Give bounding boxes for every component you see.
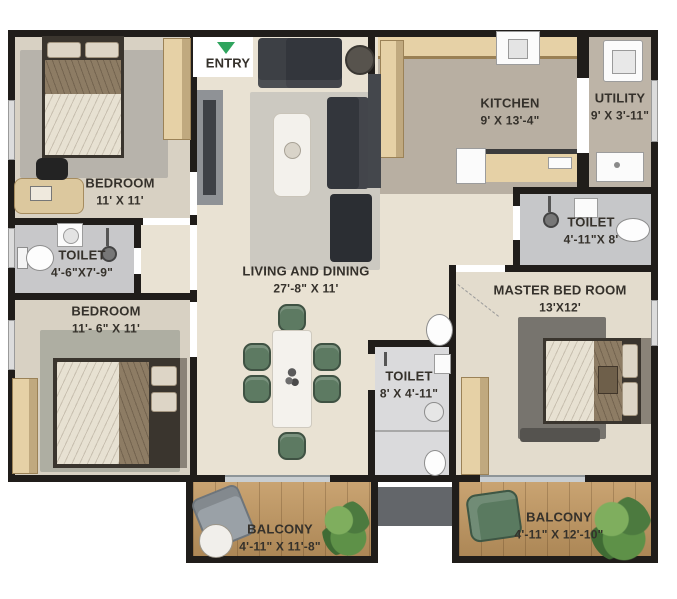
side-table-lamp bbox=[345, 45, 375, 75]
sofa-top bbox=[258, 38, 342, 88]
wall-balcony1-right bbox=[371, 482, 378, 563]
utility-washer-drum bbox=[612, 50, 636, 74]
toilet3-dims: 8' X 4'-11" bbox=[380, 387, 438, 401]
wall-toilet1-bedroom2 bbox=[8, 293, 197, 300]
utility-name: UTILITY bbox=[595, 91, 646, 106]
toilet3-shower-drain bbox=[424, 402, 444, 422]
entry-label: ENTRY bbox=[206, 54, 251, 71]
dining-chair-left-2 bbox=[243, 375, 271, 403]
dining-chair-top bbox=[278, 304, 306, 332]
kitchen-pantry bbox=[380, 40, 404, 158]
utility-faucet bbox=[614, 162, 620, 168]
wall-under-kitchen bbox=[513, 187, 658, 194]
living-dims: 27'-8" X 11' bbox=[273, 282, 338, 296]
bedroom2-wardrobe bbox=[12, 378, 38, 474]
dining-chair-left-1 bbox=[243, 343, 271, 371]
utility-dims: 9' X 3'-11" bbox=[591, 109, 649, 123]
master-wardrobe bbox=[461, 377, 489, 475]
toilet2-wc bbox=[616, 218, 650, 242]
kitchen-sink bbox=[508, 39, 528, 59]
wall-toilet1-right-a bbox=[134, 218, 141, 248]
bedroom1-duvet bbox=[45, 94, 121, 155]
utility-label: UTILITY 9' X 3'-11" bbox=[591, 90, 649, 125]
floor-plan: ENTRY BEDROOM 11' X 11' TOILET 4'-6"X7'-… bbox=[0, 0, 677, 599]
wall-balcony2-right bbox=[651, 482, 658, 563]
wall-kitchen-utility-a bbox=[577, 30, 589, 78]
wall-left-rooms-b bbox=[190, 215, 197, 225]
balcony2-name: BALCONY bbox=[526, 510, 592, 525]
balcony2-dims: 4'-11" X 12'-10" bbox=[514, 528, 603, 542]
master-label: MASTER BED ROOM 13'X12' bbox=[494, 282, 627, 317]
wall-balcony2-left bbox=[452, 482, 459, 563]
bedroom1-laptop bbox=[30, 186, 52, 201]
bedroom1-pillow-left bbox=[47, 42, 81, 58]
bedroom1-dims: 11' X 11' bbox=[96, 194, 144, 208]
bedroom2-name: BEDROOM bbox=[71, 304, 140, 319]
kitchen-fridge bbox=[368, 74, 381, 188]
bedroom2-pillow-top bbox=[151, 366, 177, 386]
balcony1-round-table bbox=[199, 524, 233, 558]
bedroom2-label: BEDROOM 11'- 6" X 11' bbox=[71, 303, 140, 338]
toilet2-shower-stem bbox=[548, 196, 551, 212]
kitchen-hob-module bbox=[456, 148, 486, 184]
kitchen-label: KITCHEN 9' X 13'-4" bbox=[480, 95, 539, 130]
bedroom1-desk-chair bbox=[36, 158, 68, 180]
kitchen-name: KITCHEN bbox=[480, 96, 539, 111]
toilet3-partition bbox=[375, 430, 449, 432]
toilet3-wc bbox=[424, 450, 446, 476]
balcony1-plant bbox=[322, 500, 370, 558]
toilet3-name: TOILET bbox=[385, 369, 432, 384]
sliding-door-balcony2 bbox=[480, 475, 585, 482]
service-ledge bbox=[375, 487, 455, 526]
toilet1-basin-bowl bbox=[63, 228, 79, 244]
bedroom1-duvet-top bbox=[45, 60, 121, 94]
toilet1-dims: 4'-6"X7'-9" bbox=[51, 266, 113, 280]
bedroom2-headboard bbox=[180, 358, 187, 468]
toilet1-lobby-floor bbox=[141, 225, 190, 293]
utility-sink bbox=[596, 152, 644, 182]
bedroom1-pillow-right bbox=[85, 42, 119, 58]
toilet2-dims: 4'-11"X 8' bbox=[564, 233, 619, 247]
toilet1-label: TOILET 4'-6"X7'-9" bbox=[51, 247, 113, 282]
window-right-master bbox=[651, 300, 658, 346]
bedroom2-dims: 11'- 6" X 11' bbox=[72, 322, 140, 336]
wall-toilet2-left-b bbox=[513, 240, 520, 265]
wall-left-rooms-d bbox=[190, 357, 197, 475]
bedroom2-duvet-accent bbox=[119, 362, 149, 464]
wall-toilet3-left-a bbox=[368, 340, 375, 354]
wall-toilet2-left-a bbox=[513, 194, 520, 206]
kitchen-counter-top bbox=[378, 37, 577, 59]
corridor-floor bbox=[449, 194, 513, 265]
dining-chair-right-1 bbox=[313, 343, 341, 371]
dining-chair-bottom bbox=[278, 432, 306, 460]
window-left-bedroom1 bbox=[8, 100, 15, 160]
balcony1-name: BALCONY bbox=[247, 522, 313, 537]
kitchen-dims: 9' X 13'-4" bbox=[481, 114, 540, 128]
balcony1-label: BALCONY 4'-11" X 11'-8" bbox=[239, 521, 320, 556]
ottoman bbox=[330, 194, 372, 262]
toilet2-shower-head bbox=[543, 212, 559, 228]
window-right-utility bbox=[651, 80, 658, 142]
master-headboard bbox=[641, 338, 651, 424]
toilet1-shower-stem bbox=[106, 228, 109, 246]
bedroom1-label: BEDROOM 11' X 11' bbox=[85, 175, 154, 210]
living-name: LIVING AND DINING bbox=[242, 264, 369, 279]
master-name: MASTER BED ROOM bbox=[494, 283, 627, 298]
bedroom1-wardrobe bbox=[163, 38, 191, 140]
bedroom1-name: BEDROOM bbox=[85, 176, 154, 191]
entry-arrow-icon bbox=[217, 42, 235, 54]
master-pillow-bottom bbox=[622, 382, 638, 416]
balcony1-dims: 4'-11" X 11'-8" bbox=[239, 540, 320, 554]
sofa-right bbox=[327, 97, 369, 189]
toilet2-label: TOILET 4'-11"X 8' bbox=[564, 214, 619, 249]
master-duvet bbox=[546, 341, 594, 421]
toilet1-name: TOILET bbox=[58, 248, 105, 263]
master-pillow-top bbox=[622, 344, 638, 378]
master-dims: 13'X12' bbox=[539, 301, 581, 315]
wall-toilet3-left-b bbox=[368, 390, 375, 475]
bedroom2-pillow-bottom bbox=[151, 392, 177, 412]
toilet3-label: TOILET 8' X 4'-11" bbox=[380, 368, 438, 403]
wall-master-top bbox=[505, 265, 658, 272]
kitchen-tray bbox=[548, 157, 572, 169]
coffee-table-decor bbox=[284, 142, 301, 159]
master-bench bbox=[520, 428, 600, 442]
bedroom2-duvet bbox=[57, 362, 119, 464]
window-left-bedroom2 bbox=[8, 320, 15, 370]
dining-chair-right-2 bbox=[313, 375, 341, 403]
balcony2-label: BALCONY 4'-11" X 12'-10" bbox=[514, 509, 603, 544]
master-duvet-art bbox=[598, 366, 618, 394]
window-left-toilet1 bbox=[8, 228, 15, 268]
tv-panel bbox=[203, 100, 216, 195]
toilet1-wc-bowl bbox=[26, 245, 54, 271]
sliding-door-balcony1 bbox=[225, 475, 330, 482]
toilet2-name: TOILET bbox=[567, 215, 614, 230]
wall-balcony1-left bbox=[186, 482, 193, 563]
toilet3-outside-basin bbox=[426, 314, 453, 346]
living-label: LIVING AND DINING 27'-8" X 11' bbox=[242, 263, 369, 298]
dining-centerpiece bbox=[282, 364, 302, 392]
toilet3-shower-stem bbox=[384, 352, 387, 366]
